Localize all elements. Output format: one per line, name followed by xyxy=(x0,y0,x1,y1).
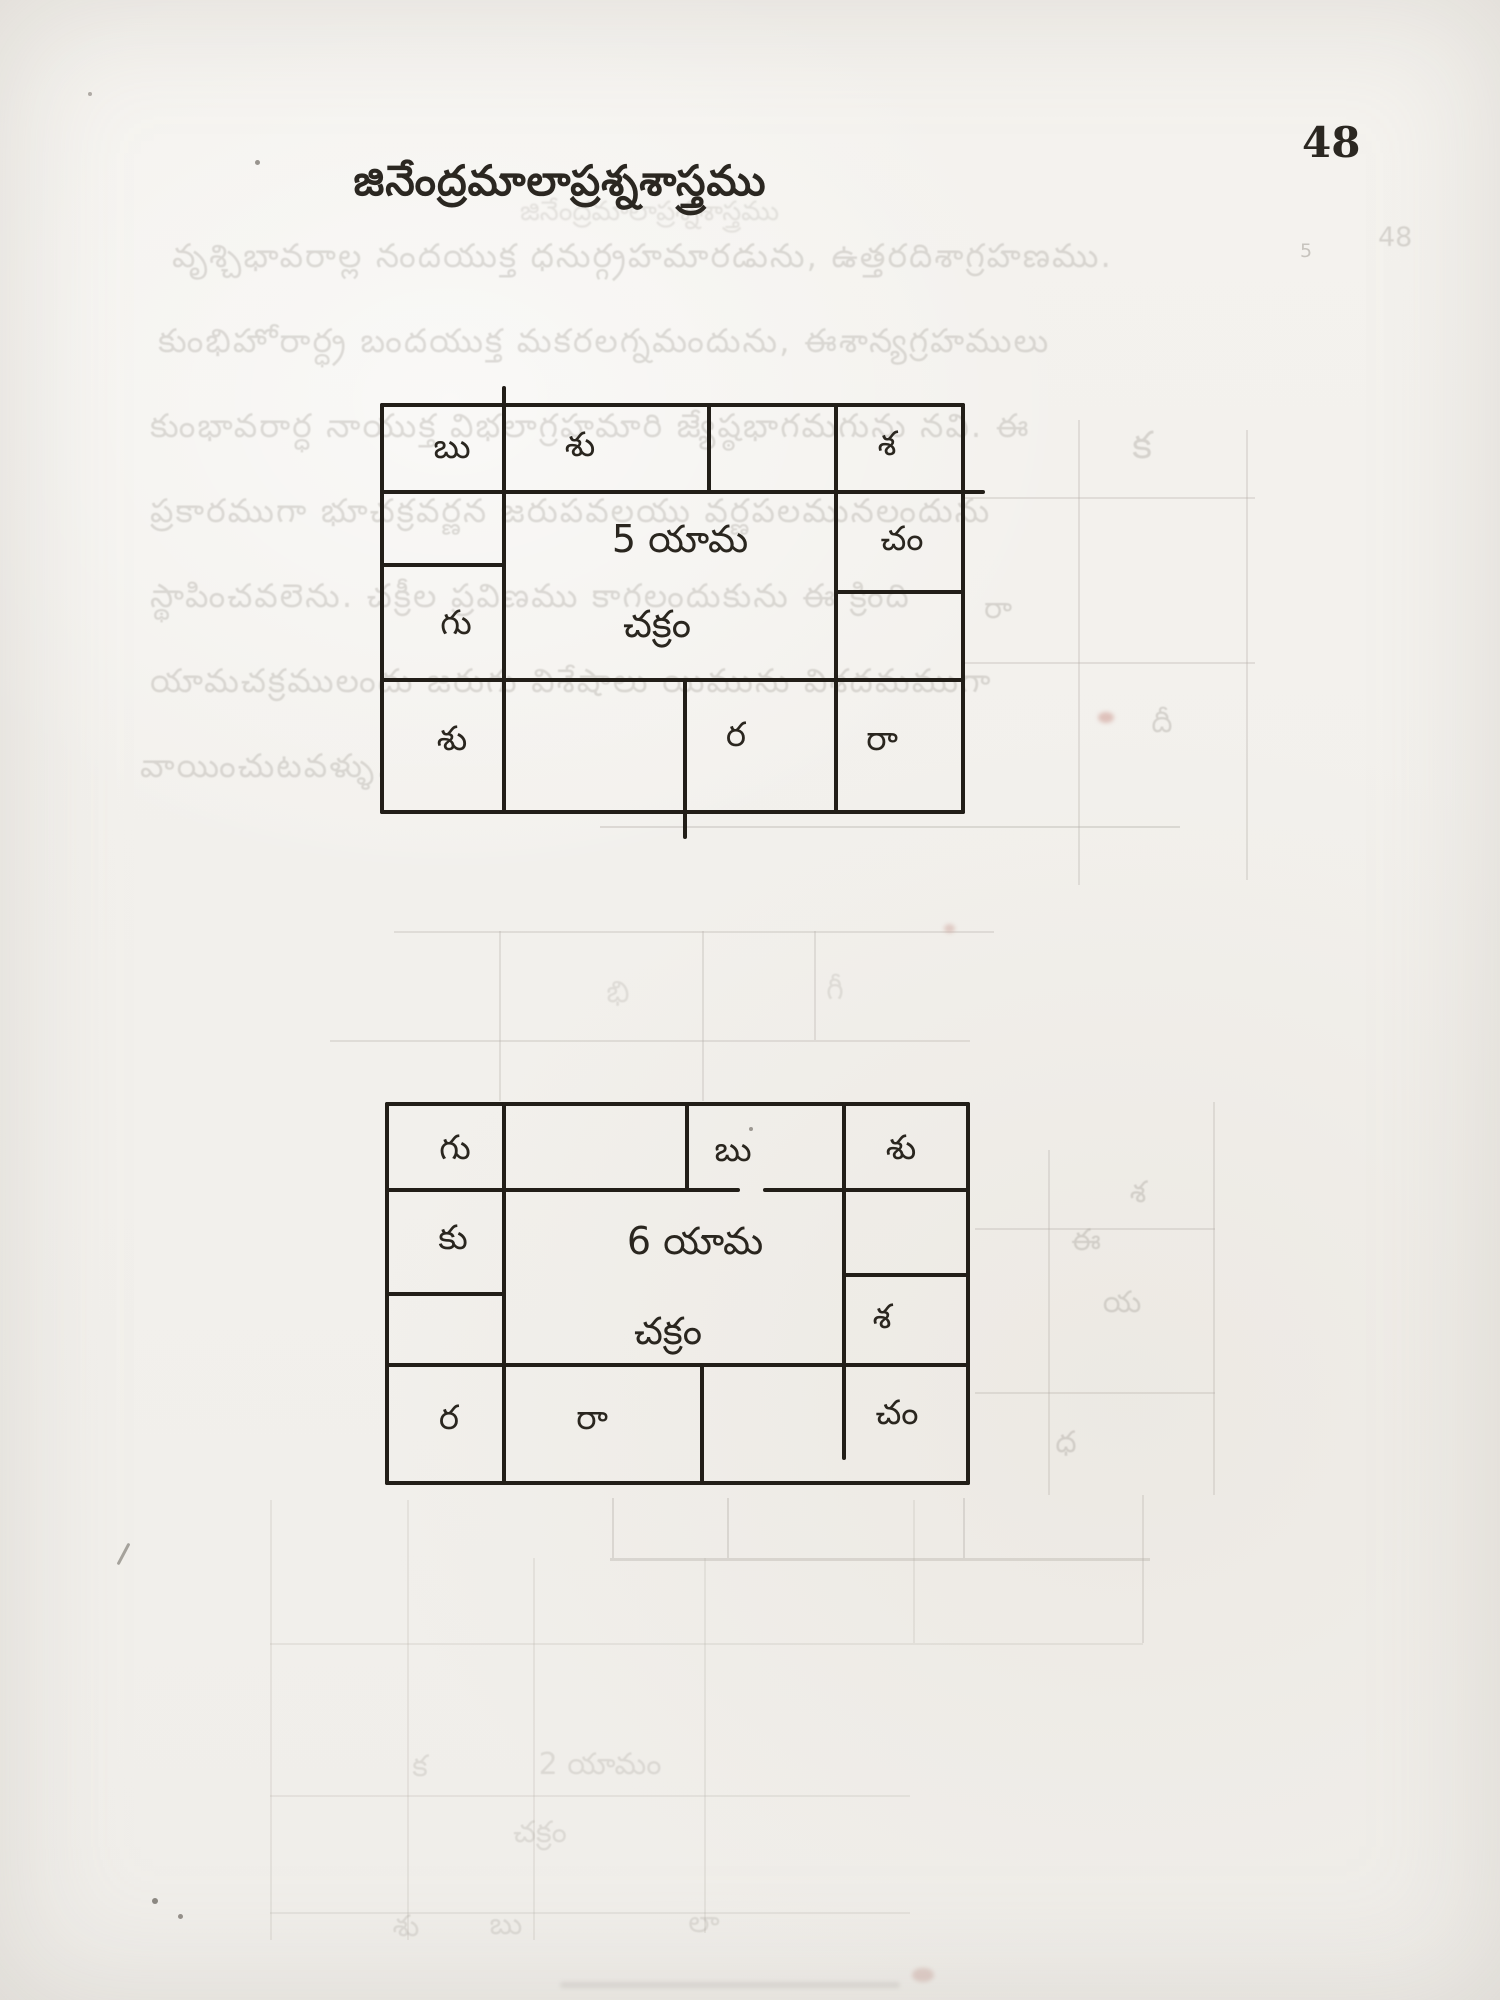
ink-speck xyxy=(749,1127,753,1131)
grid-line xyxy=(385,1188,740,1192)
ghost-grid-line xyxy=(913,1500,915,1643)
edge-smudge xyxy=(560,1982,900,1988)
grid-line xyxy=(683,678,687,839)
ghost-grid-line xyxy=(394,931,994,933)
cell-label-venus: శు xyxy=(886,1128,916,1176)
ghost-glyph: గీ xyxy=(826,972,844,1014)
cell-label-venus: శు xyxy=(437,719,467,767)
ghost-grid-line xyxy=(702,931,704,1101)
ink-speck xyxy=(255,160,260,165)
cell-label-saturn: శ xyxy=(873,1297,892,1345)
ghost-grid-line xyxy=(1213,1102,1215,1495)
scanned-book-page: జినేంద్రమాలాప్రశ్నశాస్త్రము 48 5 వృశ్చిభ… xyxy=(0,0,1500,2000)
cell-label-jupiter: గు xyxy=(440,603,472,651)
chart-6-center-line-1: 6 యామ xyxy=(627,1219,763,1273)
ghost-grid-line xyxy=(1048,1150,1050,1495)
ghost-glyph: ఈ xyxy=(1071,1223,1101,1265)
cell-label-mars: కు xyxy=(438,1218,468,1266)
ghost-grid-line xyxy=(612,1498,614,1558)
yama-chakra-6-diagram: గు బు శు కు 6 యామ చక్రం శ ర రా చం xyxy=(385,1102,970,1485)
grid-line xyxy=(385,1292,506,1296)
grid-line xyxy=(763,1188,970,1192)
grid-line xyxy=(700,1363,704,1485)
ghost-grid-line xyxy=(704,1558,706,1933)
ghost-page-number: 48 xyxy=(1378,222,1412,253)
ink-speck xyxy=(152,1898,158,1904)
grid-line xyxy=(385,1363,970,1367)
page-number: 48 xyxy=(1302,118,1360,167)
ink-speck xyxy=(88,92,92,96)
cell-label-sun: ర xyxy=(726,715,746,763)
cell-label-sun: ర xyxy=(439,1398,459,1446)
grid-line xyxy=(380,810,965,814)
ghost-grid-line xyxy=(270,1643,1143,1645)
ghost-glyph: క xyxy=(412,1749,428,1791)
grid-line xyxy=(834,403,838,814)
chart-6-center-line-2: చక్రం xyxy=(634,1309,702,1363)
pink-smudge xyxy=(1098,712,1114,723)
ghost-glyph: శ xyxy=(1130,1175,1147,1217)
ghost-glyph: ధ xyxy=(1055,1425,1076,1467)
grid-line xyxy=(502,386,506,814)
ghost-glyph: శు xyxy=(393,1909,420,1951)
ghost-glyph: దీ xyxy=(1151,705,1172,747)
grid-line xyxy=(385,1481,970,1485)
pink-smudge xyxy=(912,1968,934,1982)
ghost-glyph: లా xyxy=(688,1905,719,1947)
ghost-grid-line xyxy=(965,662,1255,664)
cell-label-rahu: రా xyxy=(576,1398,608,1446)
ghost-glyph: య xyxy=(1103,1285,1142,1327)
pen-stroke xyxy=(117,1543,131,1566)
ghost-paragraph-line: వాయించుటవళ్ళు. xyxy=(140,746,388,793)
ghost-glyph: రా xyxy=(984,591,1012,633)
page-title: జినేంద్రమాలాప్రశ్నశాస్త్రము xyxy=(0,156,1120,216)
ink-speck xyxy=(178,1914,183,1919)
grid-line xyxy=(842,1273,970,1277)
grid-line xyxy=(834,590,965,594)
grid-line xyxy=(385,1102,970,1106)
ghost-glyph: క xyxy=(1132,423,1152,477)
ghost-grid-line xyxy=(407,1500,409,1940)
cell-label-venus: శు xyxy=(565,425,595,473)
grid-line xyxy=(842,1102,846,1460)
ghost-glyph: 2 యామం xyxy=(539,1747,662,1789)
ghost-glyph: భి xyxy=(606,975,629,1017)
ghost-paragraph-line: కుంభిహోరార్ధ్ర బందయుక్త మకరలగ్నమందును, ఈ… xyxy=(158,321,1050,368)
cell-label-mercury: బు xyxy=(714,1130,751,1178)
ghost-grid-line xyxy=(1246,430,1248,880)
grid-line xyxy=(380,678,965,682)
ghost-grid-line xyxy=(270,1500,272,1940)
pink-smudge xyxy=(944,924,955,933)
cell-label-jupiter: గు xyxy=(439,1128,471,1176)
ghost-grid-line xyxy=(1142,1495,1144,1643)
ghost-grid-line xyxy=(270,1912,910,1914)
chart-5-center-line-2: చక్రం xyxy=(623,602,691,656)
ghost-grid-line xyxy=(975,1392,1215,1394)
ghost-glyph: చక్రం xyxy=(513,1815,567,1857)
grid-line xyxy=(380,490,985,494)
grid-line xyxy=(380,403,965,407)
cell-label-rahu: రా xyxy=(866,719,898,767)
ghost-grid-line xyxy=(533,1558,535,1940)
grid-line xyxy=(707,403,711,494)
chart-5-center-line-1: 5 యామ xyxy=(612,517,748,571)
ghost-grid-line xyxy=(727,1498,729,1558)
ghost-grid-line xyxy=(330,1040,970,1042)
grid-line xyxy=(966,1102,970,1485)
ghost-grid-line xyxy=(1078,420,1080,885)
ghost-small-digit: 5 xyxy=(1300,240,1312,262)
ghost-grid-line xyxy=(499,931,501,1101)
cell-label-moon: చం xyxy=(880,519,923,567)
ghost-grid-line xyxy=(600,826,1180,828)
cell-label-saturn: శ xyxy=(878,424,897,472)
cell-label-moon: చం xyxy=(875,1393,918,1441)
ghost-grid-line xyxy=(965,497,1255,499)
ghost-grid-line xyxy=(963,1498,965,1558)
ghost-glyph: బు xyxy=(490,1907,523,1949)
ghost-grid-line xyxy=(270,1795,910,1797)
cell-label-mercury: బు xyxy=(433,427,470,475)
ghost-grid-line xyxy=(610,1558,1150,1561)
grid-line xyxy=(685,1102,689,1192)
ghost-grid-line xyxy=(975,1228,1215,1230)
yama-chakra-5-diagram: బు శు శ చం గు 5 యామ చక్రం శు ర రా xyxy=(380,403,965,814)
ghost-paragraph-line: వృశ్చిభావరాల్ల నందయుక్త ధనుర్గ్రహమారడును… xyxy=(172,236,1113,283)
grid-line xyxy=(961,403,965,814)
ghost-grid-line xyxy=(814,931,816,1040)
grid-line xyxy=(380,563,506,567)
grid-line xyxy=(380,403,384,814)
